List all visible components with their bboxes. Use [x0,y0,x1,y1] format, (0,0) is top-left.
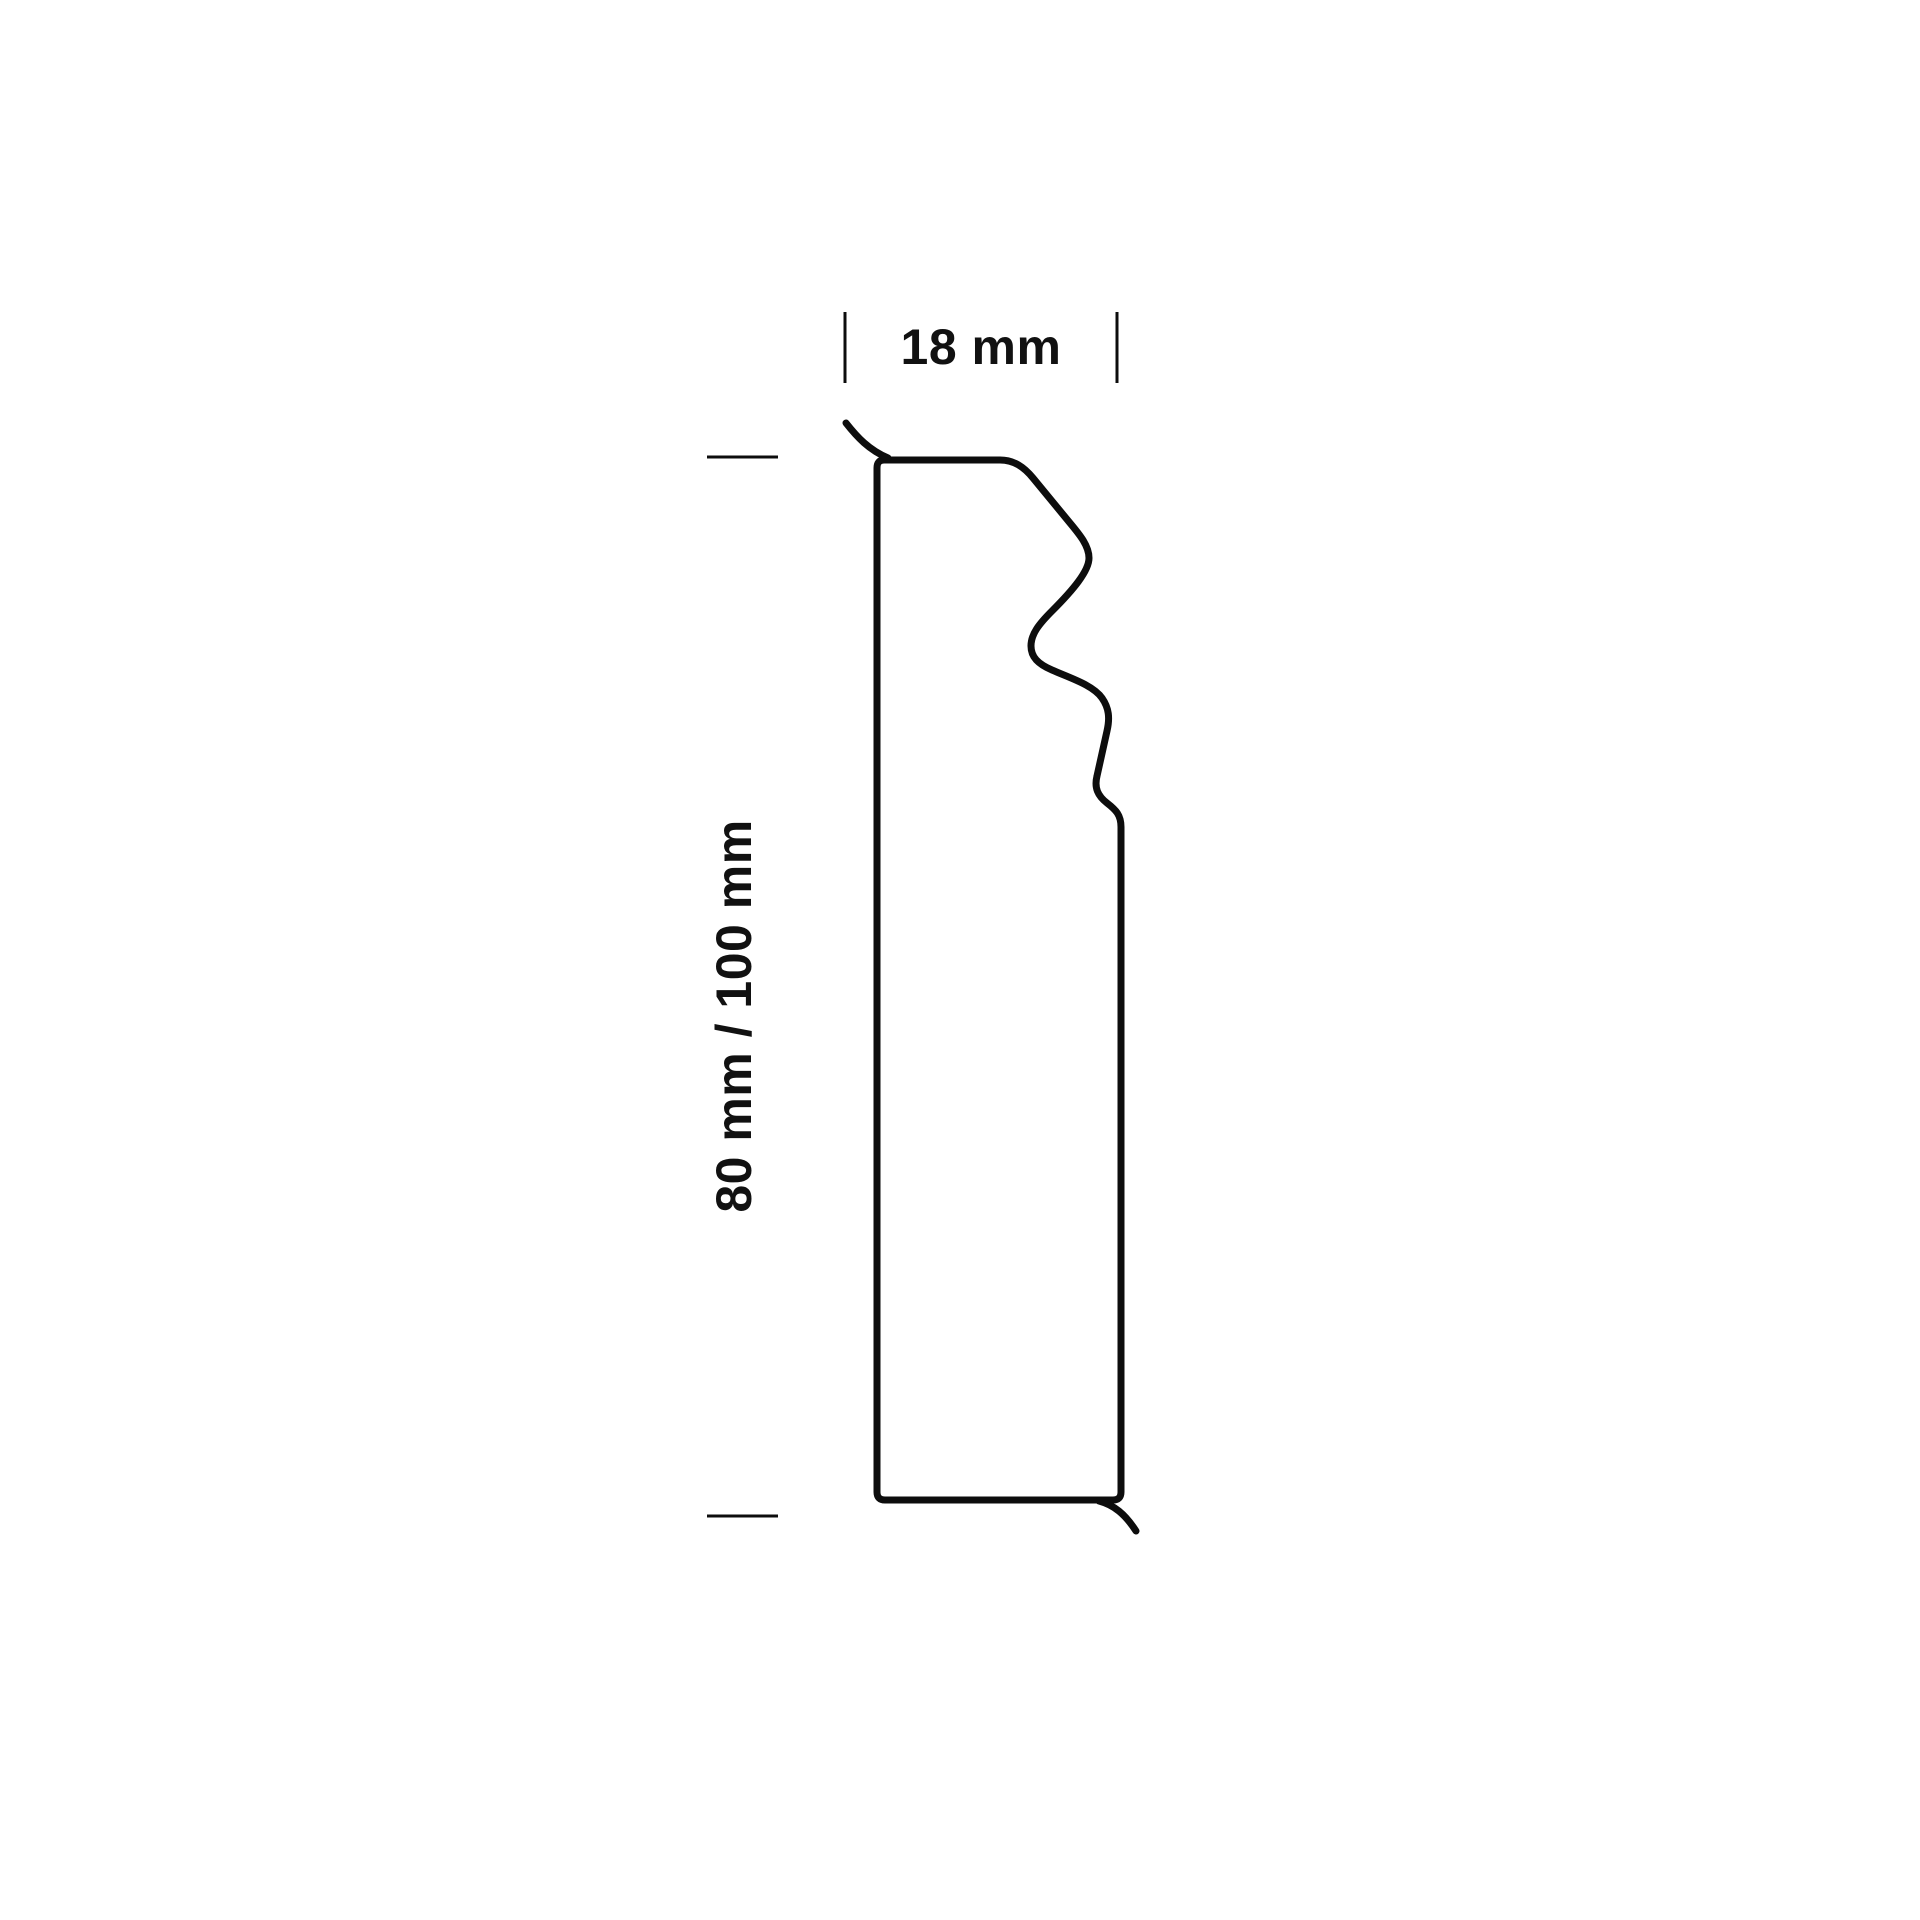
profile-outline [877,460,1121,1500]
bottom-right-overshoot-stroke [1099,1501,1136,1531]
top-left-overshoot-stroke [846,423,888,458]
skirting-profile-drawing [0,0,1920,1920]
diagram-canvas: 18 mm 80 mm / 100 mm [0,0,1920,1920]
width-dimension-label: 18 mm [901,318,1062,376]
height-dimension-label: 80 mm / 100 mm [705,819,763,1212]
